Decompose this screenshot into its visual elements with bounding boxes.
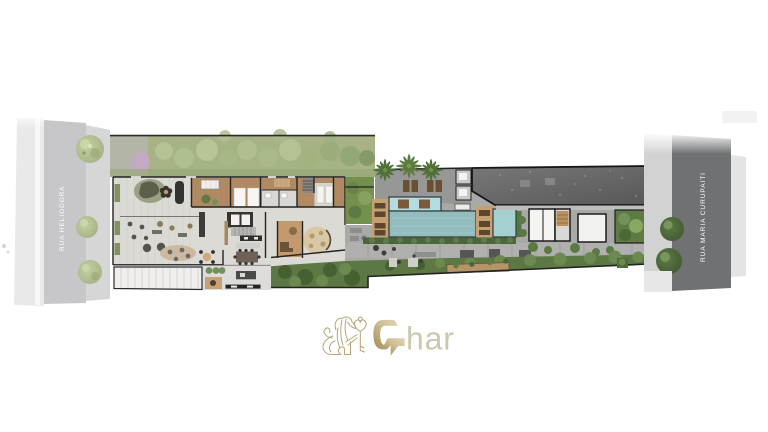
svg-text:RUA HELIODORA: RUA HELIODORA — [59, 185, 66, 251]
svg-text:RUA MARIA CURUPAITI: RUA MARIA CURUPAITI — [700, 172, 707, 262]
svg-text:har: har — [406, 321, 455, 357]
